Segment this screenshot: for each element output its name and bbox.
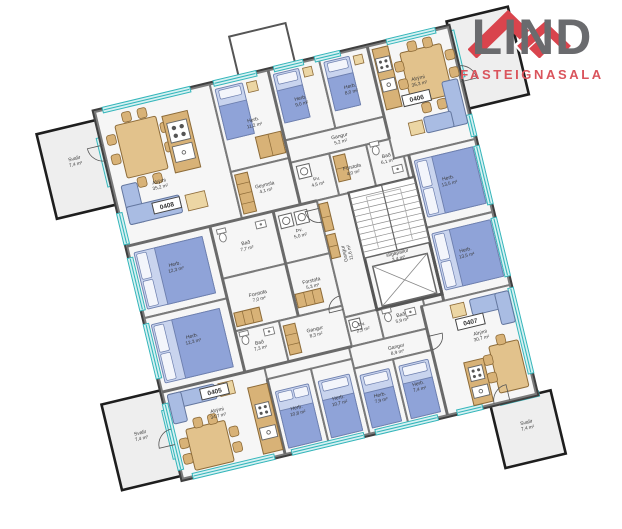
chair-icon — [483, 354, 494, 366]
chair-icon — [111, 153, 122, 165]
chair-icon — [106, 134, 117, 146]
washer-icon — [296, 163, 312, 179]
chair-icon — [121, 111, 132, 123]
stove-icon — [255, 402, 272, 419]
chair-icon — [183, 453, 194, 465]
chair-icon — [495, 334, 506, 346]
brand-name: LIND — [448, 12, 616, 62]
stove-icon — [167, 119, 191, 143]
chair-icon — [487, 372, 498, 384]
stove-icon — [375, 56, 392, 73]
coffee-table-icon — [353, 54, 364, 65]
chair-icon — [228, 425, 239, 437]
coffee-table-icon — [246, 81, 258, 93]
brand-subtitle: FASTEIGNASALA — [448, 67, 616, 82]
chair-icon — [232, 441, 243, 453]
stove-icon — [468, 365, 485, 382]
chair-icon — [398, 78, 409, 90]
chair-icon — [192, 417, 203, 429]
brand-logo: LIND FASTEIGNASALA — [448, 10, 616, 98]
chair-icon — [421, 102, 432, 114]
sink-icon — [381, 77, 397, 92]
chair-icon — [137, 176, 148, 188]
coffee-table-icon — [408, 120, 425, 136]
chair-icon — [394, 61, 405, 73]
chair-icon — [137, 107, 148, 119]
chair-icon — [422, 37, 433, 49]
chair-icon — [406, 40, 417, 52]
coffee-table-icon — [450, 302, 467, 318]
chair-icon — [179, 437, 190, 449]
coffee-table-icon — [303, 66, 314, 77]
washer-icon — [278, 213, 294, 229]
